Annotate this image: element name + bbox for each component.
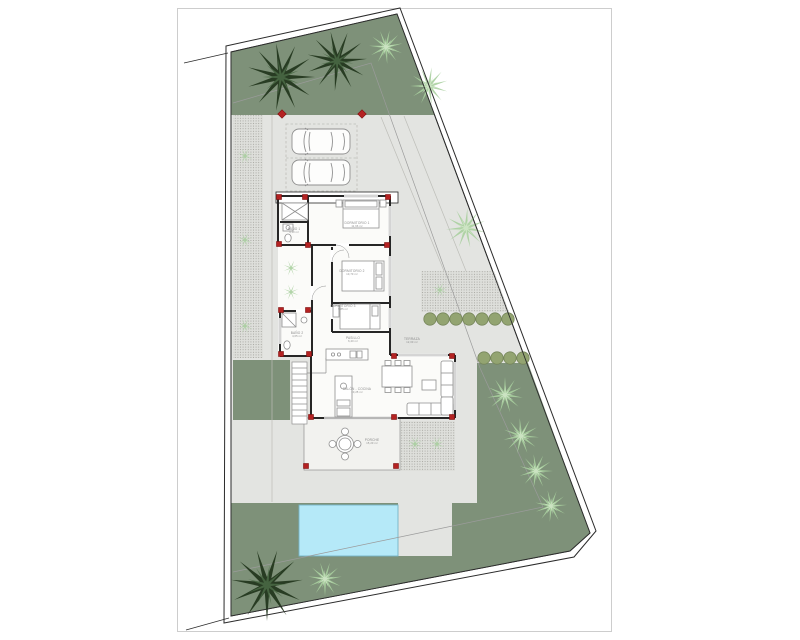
column-marker <box>279 352 284 357</box>
column-marker <box>303 195 308 200</box>
room-label: BAÑO 14,10 m² <box>288 226 301 234</box>
column-marker <box>450 354 455 359</box>
column-marker <box>306 308 311 313</box>
hatched-terrace-east <box>400 421 455 471</box>
hedge-bush <box>424 313 436 325</box>
column-marker <box>277 195 282 200</box>
room-label: PORCHE15,20 m² <box>365 438 380 445</box>
column-marker <box>386 195 391 200</box>
column-marker <box>450 415 455 420</box>
column-marker <box>277 242 282 247</box>
column-marker <box>385 243 390 248</box>
floor-plan-drawing: DORMITORIO 111,96 m²DORMITORIO 210,70 m²… <box>0 0 800 640</box>
lawn-west-patch <box>233 360 290 420</box>
column-marker <box>306 243 311 248</box>
room-label: BAÑO 24,65 m² <box>291 330 304 338</box>
hedge-bush <box>450 313 462 325</box>
hedge-bush <box>437 313 449 325</box>
hedge-bush <box>504 352 516 364</box>
site-plan-sheet: DORMITORIO 111,96 m²DORMITORIO 210,70 m²… <box>0 0 800 640</box>
car <box>292 159 350 186</box>
column-marker <box>279 308 284 313</box>
hedge-bush <box>491 352 503 364</box>
swimming-pool <box>299 505 398 556</box>
pool-deck <box>398 503 452 556</box>
car <box>292 128 350 155</box>
hatched-path-west <box>233 115 263 358</box>
hedge-bush <box>489 313 501 325</box>
hatched-patio-northeast <box>421 271 509 312</box>
column-marker <box>392 415 397 420</box>
column-marker <box>304 464 309 469</box>
hedge-bush <box>476 313 488 325</box>
hedge-bush <box>478 352 490 364</box>
hedge-bush <box>463 313 475 325</box>
column-marker <box>394 464 399 469</box>
column-marker <box>309 415 314 420</box>
column-marker <box>392 354 397 359</box>
column-marker <box>307 352 312 357</box>
